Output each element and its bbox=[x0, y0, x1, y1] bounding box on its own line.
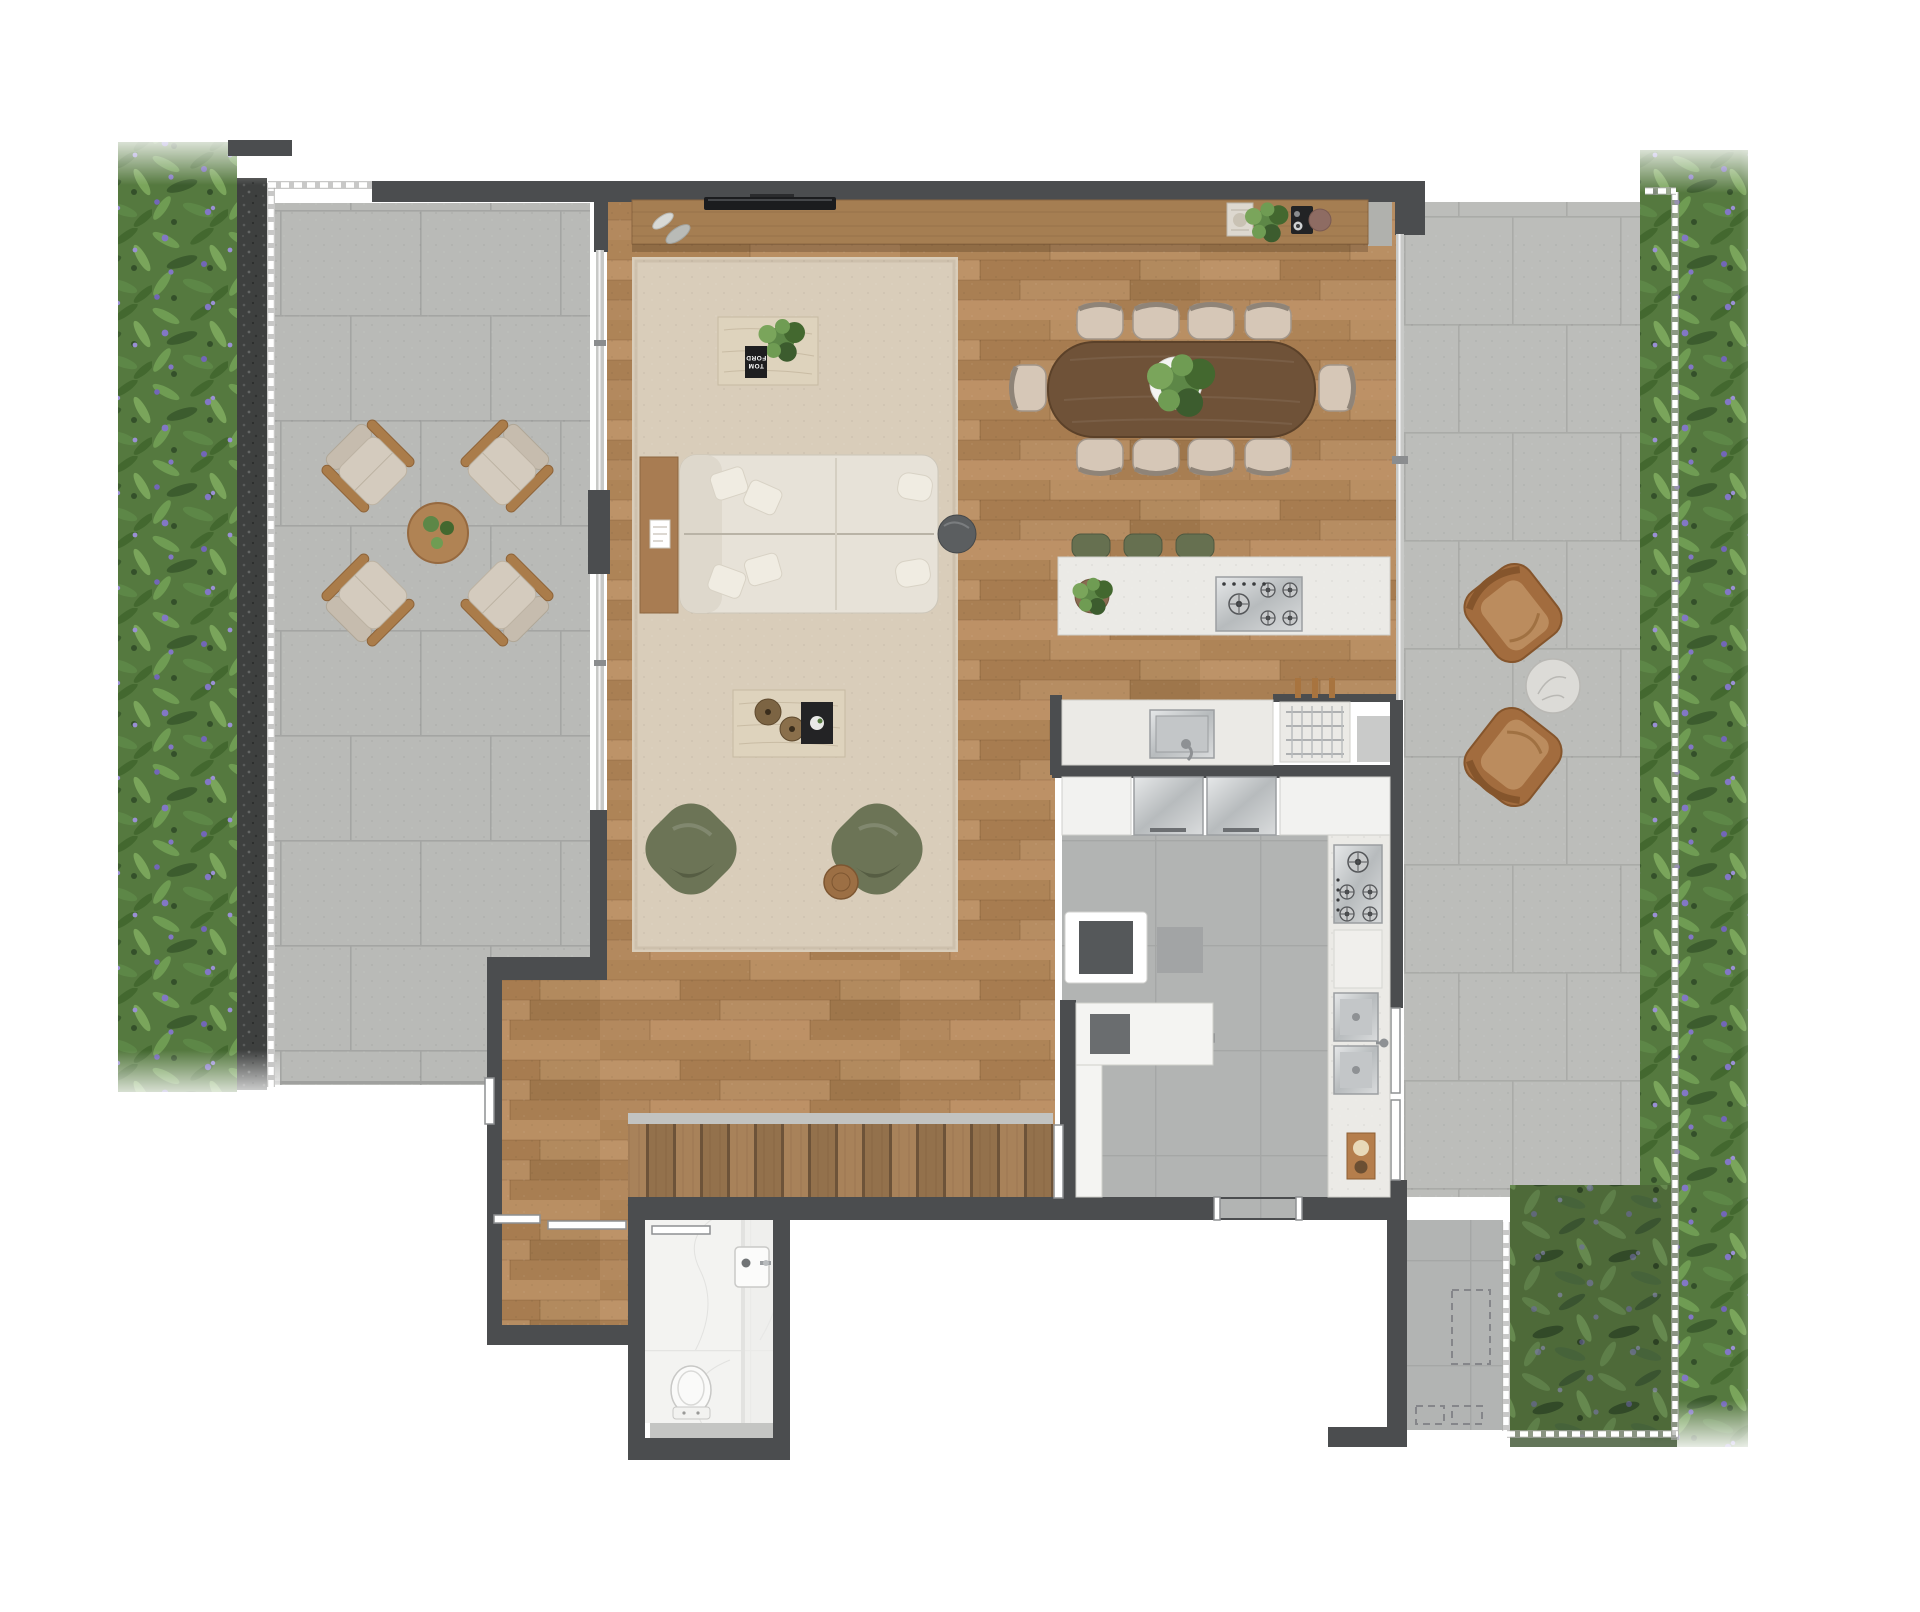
wall-kitchen-counter-line bbox=[1052, 765, 1403, 778]
television bbox=[704, 197, 836, 210]
cabinet-front bbox=[1062, 777, 1131, 835]
gravel-strip-left bbox=[237, 178, 267, 1090]
sliding-door-leaf bbox=[1391, 1008, 1400, 1093]
staircase bbox=[628, 1113, 1053, 1200]
stair-side-door bbox=[1054, 1125, 1063, 1198]
pantry-equipment bbox=[1090, 1014, 1130, 1054]
cutting-board bbox=[1347, 1133, 1375, 1179]
wall-left-stub bbox=[594, 202, 608, 252]
book-tom-ford: TOM FORD bbox=[745, 346, 767, 378]
appliance-row bbox=[1062, 777, 1390, 835]
dining-chair bbox=[1188, 439, 1234, 474]
marble-side-table bbox=[1526, 659, 1580, 713]
wall-bathroom-left bbox=[628, 1220, 645, 1460]
garden-strip-left bbox=[110, 130, 280, 1105]
wall-left-jog bbox=[487, 957, 607, 980]
bar-stool bbox=[1124, 534, 1162, 558]
wall-corridor-bottom bbox=[487, 1325, 645, 1345]
hall-door-small bbox=[494, 1215, 540, 1223]
floor-plan-drawing: TOM FORD bbox=[0, 0, 1920, 1612]
wall-service-yard bbox=[1387, 1205, 1407, 1447]
hall-door bbox=[548, 1221, 626, 1229]
wall-top-right-jog bbox=[1395, 202, 1425, 235]
wall-niche-gray bbox=[1368, 202, 1392, 246]
glass-mullion-left bbox=[588, 490, 610, 574]
floor-plan-page: TOM FORD bbox=[0, 0, 1920, 1612]
dining-chair bbox=[1245, 304, 1291, 339]
wall-top-left-stub bbox=[228, 140, 292, 156]
wall-bathroom-right bbox=[773, 1215, 790, 1460]
grass-patch bbox=[1510, 1185, 1677, 1447]
book-title-line1: TOM bbox=[748, 362, 764, 369]
dining-chair bbox=[1011, 365, 1046, 411]
dining-chair bbox=[1188, 304, 1234, 339]
utensil-handle bbox=[1312, 678, 1318, 698]
sofa bbox=[640, 455, 938, 613]
bathroom-threshold bbox=[650, 1423, 773, 1438]
gas-cooktop-island bbox=[1216, 577, 1302, 631]
wall-right-mid bbox=[1390, 694, 1403, 1008]
coffee-table-2 bbox=[733, 690, 845, 757]
stair-treads bbox=[628, 1124, 1053, 1200]
tv-console bbox=[632, 194, 1368, 252]
decor-round-tray bbox=[1309, 209, 1331, 231]
counter-inset bbox=[1334, 930, 1382, 988]
kitchen-sink bbox=[1150, 710, 1214, 760]
wall-kitchen-left bbox=[1050, 695, 1062, 775]
kitchen-right-counter bbox=[1328, 835, 1390, 1197]
wall-top bbox=[372, 181, 1425, 202]
dining-chair bbox=[1319, 365, 1354, 411]
dining-chair bbox=[1077, 439, 1123, 474]
wood-mini-table bbox=[824, 865, 858, 899]
wall-left-bottom bbox=[487, 980, 502, 1330]
coffee-table-1: TOM FORD bbox=[718, 317, 818, 385]
stair-landing-edge bbox=[628, 1113, 1053, 1124]
cabinet-front bbox=[1280, 777, 1390, 835]
round-side-table-dark bbox=[938, 515, 976, 553]
wall-left-lower bbox=[590, 810, 607, 960]
wall-bathroom-bottom bbox=[628, 1438, 790, 1460]
kitchen-stool-gray bbox=[1157, 927, 1203, 973]
wall-bottom-right-stub bbox=[1328, 1427, 1407, 1447]
pantry-counter-left bbox=[1076, 1065, 1102, 1197]
terrace-right-floor bbox=[1404, 202, 1640, 1197]
service-yard-floor bbox=[1407, 1220, 1503, 1430]
wall-stairs-bottom bbox=[628, 1197, 1064, 1220]
outdoor-round-table bbox=[408, 503, 468, 563]
dining-chair bbox=[1133, 304, 1179, 339]
dining-chair bbox=[1245, 439, 1291, 474]
terrace-left-floor bbox=[275, 203, 590, 1085]
sliding-door-leaf bbox=[1391, 1100, 1400, 1180]
utensil-handle bbox=[1295, 678, 1301, 698]
dining-chair bbox=[1133, 439, 1179, 474]
gas-cooktop-kitchen bbox=[1334, 845, 1382, 923]
wall-kitchen-top-thin bbox=[1273, 694, 1403, 702]
counter-gray-panel bbox=[1357, 716, 1390, 762]
bathroom-door bbox=[652, 1226, 710, 1234]
glass-mullion-right bbox=[1392, 456, 1408, 464]
dining-chair bbox=[1077, 304, 1123, 339]
kitchen-doorway-threshold bbox=[1218, 1199, 1298, 1218]
bar-stool bbox=[1176, 534, 1214, 558]
washbasin bbox=[735, 1247, 771, 1287]
toilet bbox=[671, 1366, 711, 1419]
book-title-line2: FORD bbox=[746, 354, 766, 361]
oven-appliance bbox=[1134, 777, 1203, 835]
oven-appliance bbox=[1207, 777, 1276, 835]
bar-stool bbox=[1072, 534, 1110, 558]
utensil-handle bbox=[1329, 678, 1335, 698]
